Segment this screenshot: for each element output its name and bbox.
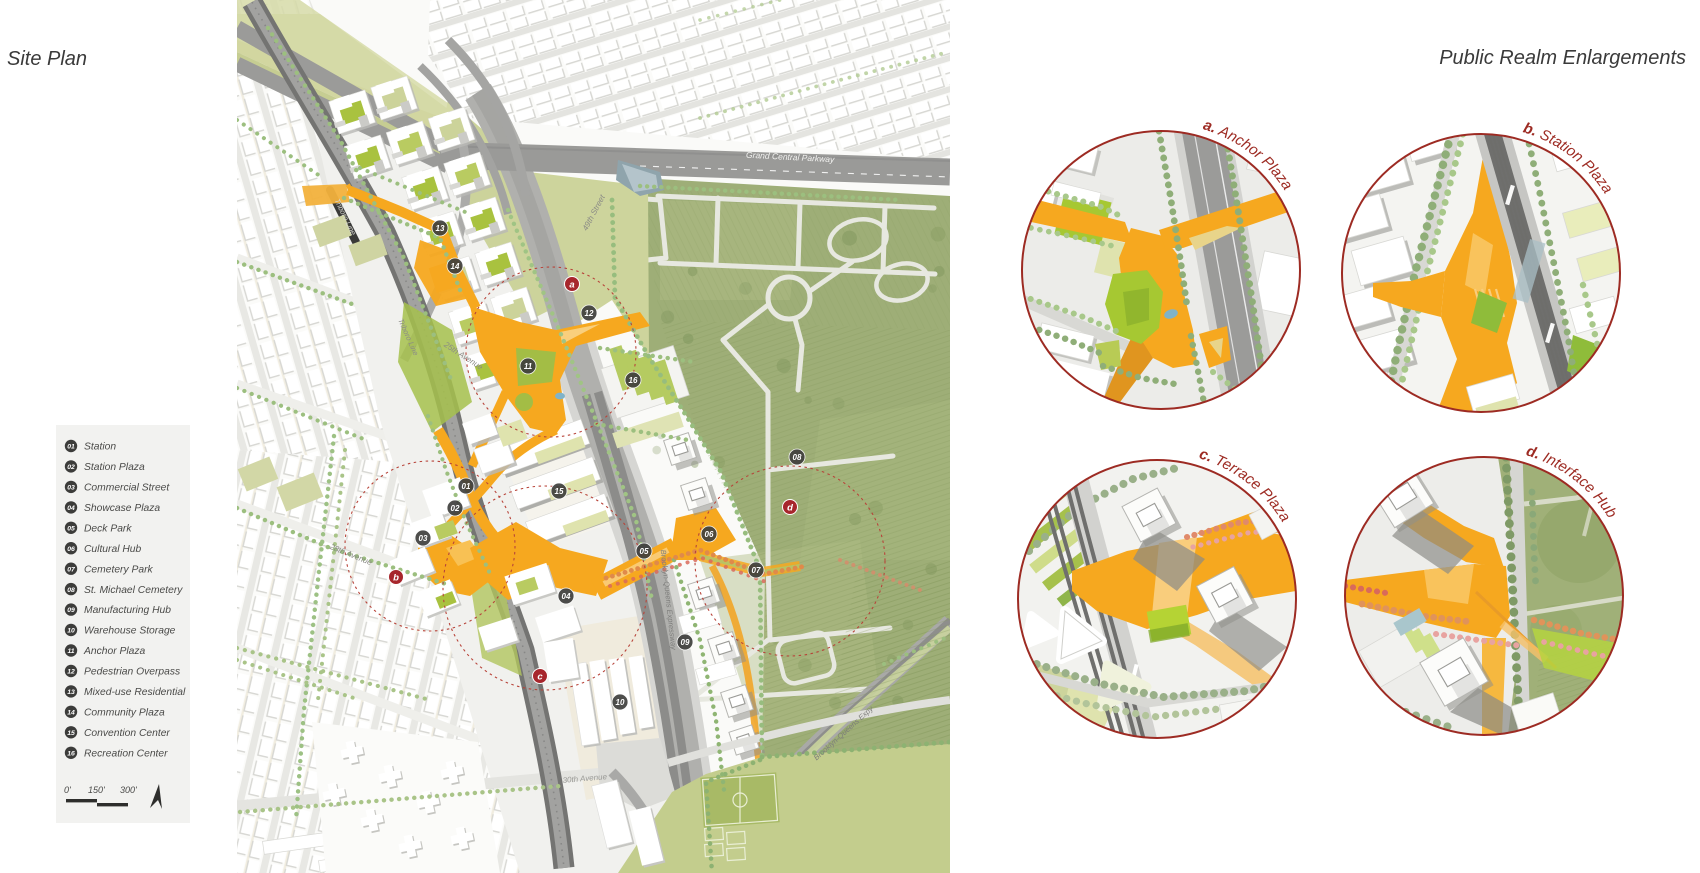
svg-text:12: 12	[585, 309, 594, 318]
svg-text:03: 03	[67, 485, 75, 492]
svg-text:06: 06	[705, 530, 714, 539]
svg-text:01: 01	[67, 444, 75, 451]
svg-text:14: 14	[451, 262, 460, 271]
svg-text:Convention Center: Convention Center	[84, 728, 170, 739]
svg-text:Recreation Center: Recreation Center	[84, 748, 168, 759]
svg-text:Community Plaza: Community Plaza	[84, 707, 165, 718]
svg-text:07: 07	[67, 566, 76, 573]
svg-text:07: 07	[752, 566, 761, 575]
svg-text:09: 09	[67, 607, 75, 614]
svg-text:Anchor Plaza: Anchor Plaza	[83, 646, 146, 657]
svg-text:16: 16	[67, 750, 75, 757]
svg-text:05: 05	[640, 547, 649, 556]
svg-text:Cemetery Park: Cemetery Park	[84, 564, 154, 575]
svg-text:15: 15	[555, 487, 564, 496]
svg-text:Station: Station	[84, 442, 116, 453]
svg-text:St. Michael Cemetery: St. Michael Cemetery	[84, 585, 183, 596]
svg-text:02: 02	[67, 464, 75, 471]
svg-text:04: 04	[67, 505, 75, 512]
svg-text:Mixed-use Residential: Mixed-use Residential	[84, 687, 186, 698]
svg-text:Manufacturing Hub: Manufacturing Hub	[84, 605, 171, 616]
svg-text:c: c	[537, 672, 543, 683]
svg-text:b: b	[393, 573, 399, 584]
svg-text:0': 0'	[64, 785, 71, 795]
svg-text:11: 11	[67, 648, 74, 655]
svg-text:10: 10	[67, 628, 75, 635]
svg-text:Pedestrian Overpass: Pedestrian Overpass	[84, 667, 180, 678]
svg-text:Station Plaza: Station Plaza	[84, 462, 145, 473]
svg-text:300': 300'	[120, 785, 137, 795]
svg-text:Commercial Street: Commercial Street	[84, 483, 170, 494]
svg-text:10: 10	[616, 698, 625, 707]
svg-text:13: 13	[67, 689, 75, 696]
svg-text:16: 16	[629, 376, 638, 385]
svg-text:14: 14	[67, 709, 75, 716]
svg-text:04: 04	[562, 592, 571, 601]
svg-text:01: 01	[462, 482, 471, 491]
svg-text:06: 06	[67, 546, 75, 553]
svg-text:09: 09	[681, 638, 690, 647]
svg-text:15: 15	[67, 730, 75, 737]
svg-text:Showcase Plaza: Showcase Plaza	[84, 503, 160, 514]
svg-text:Cultural Hub: Cultural Hub	[84, 544, 142, 555]
svg-text:08: 08	[67, 587, 75, 594]
svg-text:150': 150'	[88, 785, 105, 795]
svg-text:12: 12	[67, 669, 75, 676]
svg-text:Warehouse Storage: Warehouse Storage	[84, 626, 176, 637]
svg-text:a: a	[569, 280, 574, 291]
svg-text:02: 02	[451, 504, 460, 513]
svg-text:08: 08	[793, 453, 802, 462]
svg-text:Deck Park: Deck Park	[84, 523, 132, 534]
svg-text:Public Realm Enlargements: Public Realm Enlargements	[1439, 47, 1686, 69]
svg-text:11: 11	[524, 362, 533, 371]
svg-text:d: d	[787, 503, 793, 514]
svg-text:Site Plan: Site Plan	[7, 48, 87, 70]
svg-text:13: 13	[436, 224, 445, 233]
svg-text:05: 05	[67, 525, 75, 532]
svg-text:03: 03	[419, 534, 428, 543]
